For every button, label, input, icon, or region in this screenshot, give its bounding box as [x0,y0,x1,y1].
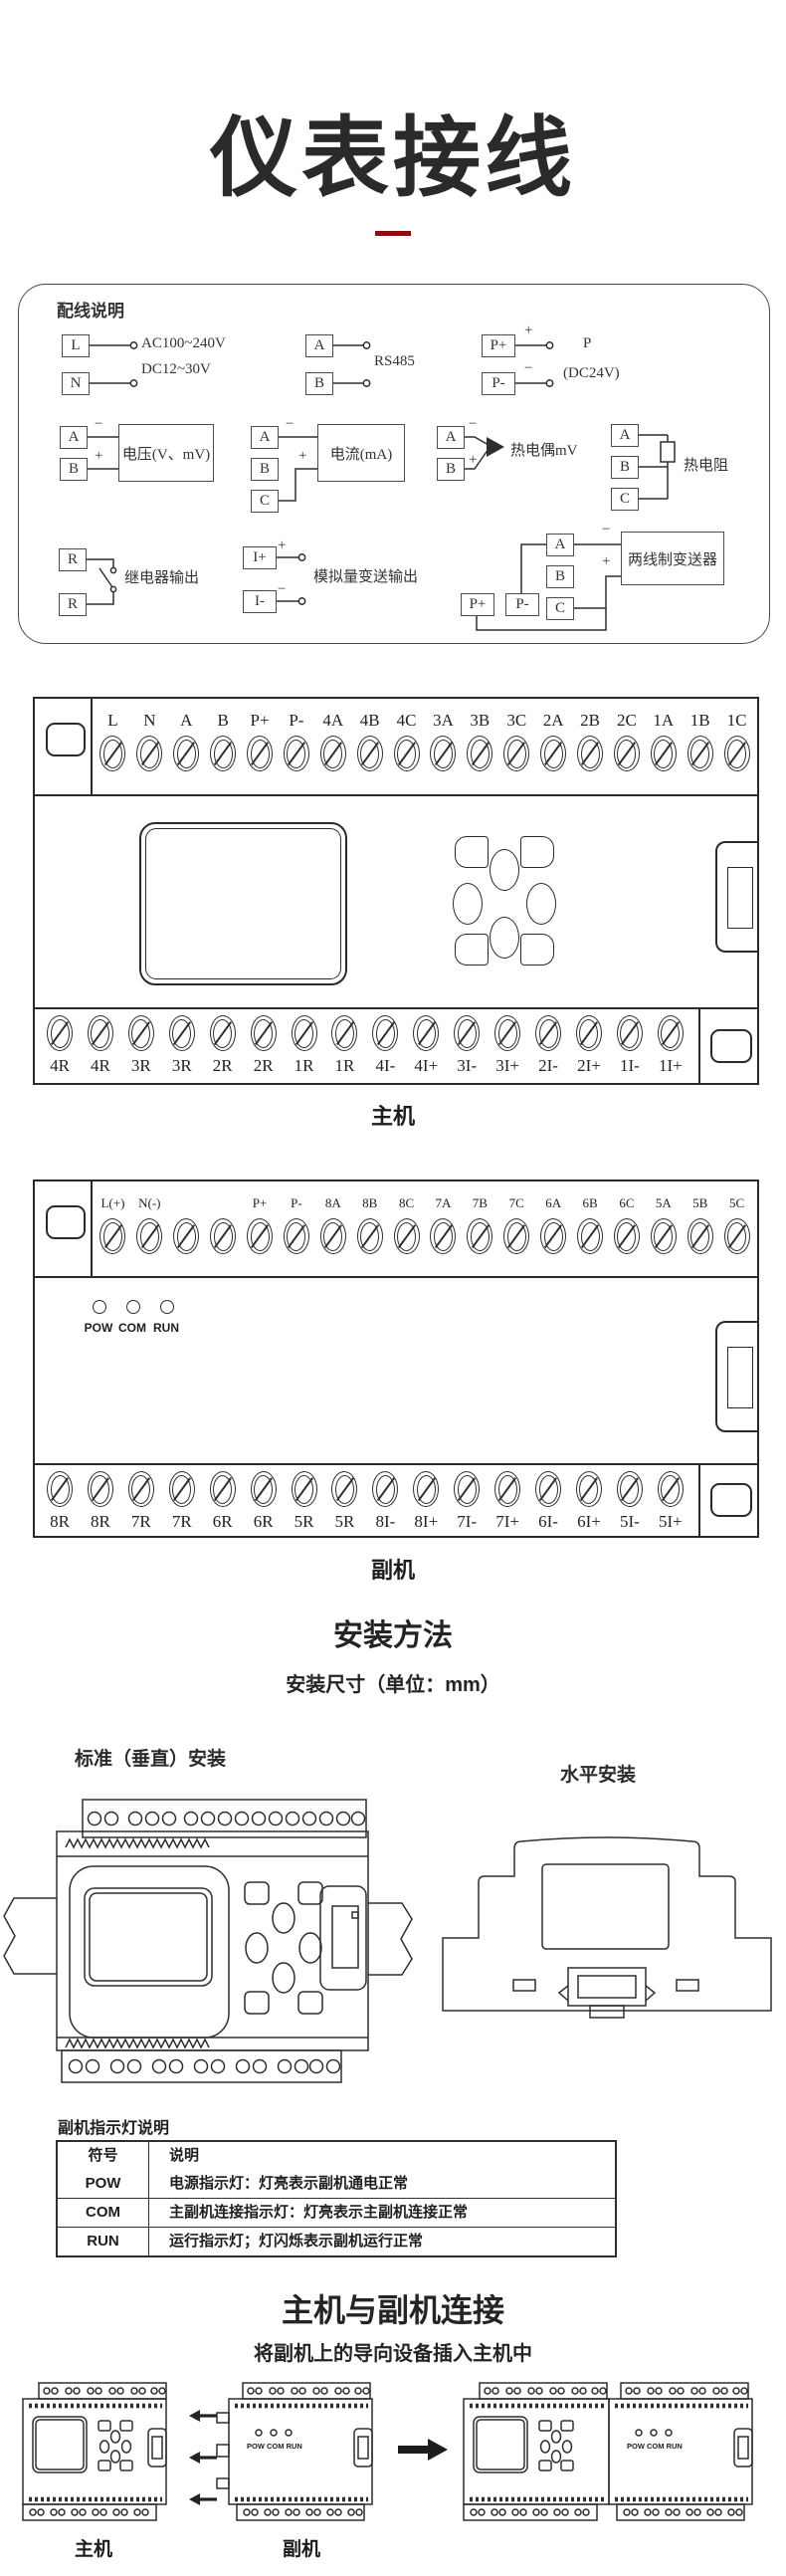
terminal-label: 1A [653,711,674,731]
product-wiring-page: 仪表接线 配线说明 [0,0,786,2576]
left-button [453,883,483,925]
screw-terminal-icon [331,1015,357,1051]
terminal-label: 5A [656,1193,672,1213]
terminal-label: 1R [335,1056,355,1076]
screw-terminal-icon [47,1015,73,1051]
transmitter-box: 两线制变送器 [621,532,724,585]
com-led [126,1300,140,1314]
terminal-label: 5R [295,1512,314,1532]
terminal-label: 7A [436,1193,452,1213]
indicator-table: 符号 说明 POW 电源指示灯：灯亮表示副机通电正常 COM 主副机连接指示灯：… [56,2140,617,2257]
divider [35,1463,757,1465]
wiring-instructions-box: 配线说明 [18,284,770,644]
terminal-column: 3A [425,711,462,771]
terminal-column: 5I+ [652,1471,689,1532]
terminal-column: 4I- [366,1015,404,1076]
terminal-column: 8I- [366,1471,404,1532]
terminal-column [205,1193,242,1254]
terminal-column: 5B [682,1193,718,1254]
terminal-label: A [180,711,192,731]
terminal-label: P+ [253,1193,268,1213]
description-cell: 主副机连接指示灯：灯亮表示主副机连接正常 [149,2199,615,2227]
terminal-A-curr: A [251,426,279,449]
red-divider [375,231,411,236]
corner-button [455,934,489,966]
terminal-label: 2R [213,1056,233,1076]
table-row: POW 电源指示灯：灯亮表示副机通电正常 [58,2170,615,2198]
sub-bottom-terminal-strip: 8R 8R 7R 7R 6R 6R 5R 5R [41,1471,689,1532]
terminal-label: 5C [729,1193,744,1213]
terminal-label: 3C [506,711,526,731]
terminal-column: 3R [163,1015,201,1076]
screw-terminal-icon [128,1015,154,1051]
divider [35,1007,757,1009]
screw-terminal-icon [467,736,492,771]
screw-terminal-icon [372,1471,398,1507]
terminal-label: 1I- [620,1056,640,1076]
screw-terminal-icon [88,1015,113,1051]
rs485-label: RS485 [374,353,415,370]
terminal-Iminus: I- [243,590,277,613]
screw-terminal-icon [284,736,309,771]
screw-terminal-icon [47,1471,73,1507]
screw-terminal-icon [320,1218,346,1254]
screw-terminal-icon [99,1218,125,1254]
terminal-label: L(+) [100,1193,124,1213]
terminal-column: 6C [608,1193,645,1254]
screw-terminal-icon [169,1015,195,1051]
terminal-column: 4A [314,711,351,771]
terminal-B-curr: B [251,458,279,481]
terminal-label: P+ [250,711,269,731]
connection-subheading: 将副机上的导向设备插入主机中 [0,2337,786,2366]
terminal-column: N(-) [131,1193,168,1254]
terminal-Pplus: P+ [482,334,515,357]
terminal-column: 3I+ [489,1015,526,1076]
terminal-column: 8I+ [407,1471,445,1532]
terminal-Iplus: I+ [243,546,277,569]
terminal-column: 1C [718,711,755,771]
table-row: COM 主副机连接指示灯：灯亮表示主副机连接正常 [58,2198,615,2227]
screw-terminal-icon [88,1471,113,1507]
terminal-column: 1R [286,1015,323,1076]
screw-terminal-icon [251,1015,277,1051]
terminal-column: 5C [718,1193,755,1254]
terminal-label: 2B [580,711,600,731]
terminal-column: 8R [82,1471,119,1532]
terminal-label: 4R [91,1056,110,1076]
right-button [526,883,556,925]
screw-terminal-icon [136,736,162,771]
terminal-column: 1I+ [652,1015,689,1076]
terminal-column: 7B [462,1193,498,1254]
terminal-column: 6A [535,1193,572,1254]
symbol-column-header: 符号 [58,2142,149,2170]
screw-terminal-icon [724,736,750,771]
mini-sub-caption: 副机 [283,2534,320,2561]
divider [91,699,93,794]
vertical-install-label: 标准（垂直）安装 [75,1744,226,1771]
connection-heading: 主机与副机连接 [0,2285,786,2331]
screw-terminal-icon [251,1471,277,1507]
screw-terminal-icon [535,1015,561,1051]
plus-sign: + [469,452,477,469]
corner-button [455,836,489,868]
terminal-label: 6I- [538,1512,558,1532]
terminal-column: 7I+ [489,1471,526,1532]
left-arrow-icon [189,2451,217,2465]
terminal-A-volt: A [60,426,88,449]
screw-terminal-icon [357,1218,383,1254]
mini-main-caption: 主机 [75,2534,112,2561]
terminal-column: 6R [245,1471,283,1532]
sub-unit-caption: 副机 [0,1553,786,1585]
screw-terminal-icon [617,1471,643,1507]
terminal-label: 8A [325,1193,341,1213]
terminal-column: A [168,711,205,771]
voltage-box: 电压(V、mV) [118,424,214,482]
terminal-label: 8B [362,1193,377,1213]
terminal-label: 1I+ [659,1056,683,1076]
terminal-B-tx: B [546,565,574,588]
divider [35,794,757,796]
terminal-label: 6R [213,1512,233,1532]
install-subheading: 安装尺寸（单位：mm） [0,1668,786,1697]
terminal-label: 4R [50,1056,70,1076]
screw-terminal-icon [688,736,713,771]
screw-terminal-icon [454,1471,480,1507]
terminal-label: 7R [131,1512,151,1532]
rtd-label: 热电阻 [684,454,728,475]
terminal-column: 7R [122,1471,160,1532]
terminal-label: L [107,711,117,731]
divider [698,1463,700,1538]
screw-terminal-icon [658,1471,684,1507]
screw-terminal-icon [494,1471,520,1507]
dc24v-label: (DC24V) [563,365,620,382]
screw-terminal-icon [394,736,420,771]
terminal-column: 8B [351,1193,388,1254]
terminal-label: 6C [619,1193,634,1213]
main-unit-diagram: L N A B P+ P- 4A 4B [33,697,759,1085]
terminal-column: 3R [122,1015,160,1076]
terminal-column: 4R [82,1015,119,1076]
terminal-label: 6I+ [577,1512,601,1532]
plus-sign: + [298,448,306,465]
terminal-column: 7C [498,1193,535,1254]
screw-terminal-icon [467,1218,492,1254]
screw-terminal-icon [292,1015,317,1051]
vertical-install-diagram [0,1787,428,2090]
main-top-terminal-strip: L N A B P+ P- 4A 4B [95,711,755,771]
terminal-column: 8C [388,1193,425,1254]
terminal-label: P- [289,711,303,731]
right-arrow-icon [398,2437,448,2463]
side-connector-port [715,841,759,953]
terminal-column: 7A [425,1193,462,1254]
corner-button [520,836,554,868]
terminal-label: 2A [543,711,564,731]
p-label: P [583,335,591,352]
terminal-label: 1R [295,1056,314,1076]
terminal-B-volt: B [60,458,88,481]
mini-led-labels: POW COM RUN [247,2442,302,2451]
screw-terminal-icon [210,1218,236,1254]
terminal-label: 6A [545,1193,561,1213]
screw-terminal-icon [503,736,529,771]
terminal-column: L [95,711,131,771]
description-cell: 运行指示灯；灯闪烁表示副机运行正常 [149,2228,615,2255]
terminal-C-curr: C [251,490,279,513]
terminal-column: 2R [204,1015,242,1076]
terminal-column [168,1193,205,1254]
plus-sign: + [278,537,286,554]
terminal-column: 8A [314,1193,351,1254]
screw-terminal-icon [169,1471,195,1507]
terminal-label: 7C [509,1193,524,1213]
terminal-label: 8C [399,1193,414,1213]
symbol-cell: POW [58,2170,149,2198]
minus-sign: − [602,522,610,538]
screw-terminal-icon [357,736,383,771]
screw-terminal-icon [173,736,199,771]
terminal-label: P- [291,1193,302,1213]
terminal-column: 7R [163,1471,201,1532]
page-title: 仪表接线 [0,88,786,214]
terminal-label: 3I- [457,1056,477,1076]
terminal-R1: R [59,548,87,571]
terminal-label: 3R [131,1056,151,1076]
screw-terminal-icon [724,1218,750,1254]
divider [35,1276,757,1278]
mini-led-labels: POW COM RUN [627,2442,683,2451]
install-heading: 安装方法 [0,1610,786,1654]
terminal-label: 7I- [457,1512,477,1532]
mount-hole [46,1205,86,1239]
terminal-label: 7B [473,1193,488,1213]
terminal-column: 2B [572,711,609,771]
terminal-label: 6B [582,1193,597,1213]
divider [91,1181,93,1276]
terminal-label: 3A [433,711,454,731]
screw-terminal-icon [413,1471,439,1507]
screw-terminal-icon [394,1218,420,1254]
terminal-Pminus-tx: P- [505,593,539,616]
terminal-column: 7I- [448,1471,486,1532]
terminal-label: 4C [397,711,417,731]
terminal-column: L(+) [95,1193,131,1254]
terminal-label: 4I- [375,1056,395,1076]
screw-terminal-icon [331,1471,357,1507]
screw-terminal-icon [128,1471,154,1507]
plus-sign: + [602,553,610,570]
screw-terminal-icon [576,1015,602,1051]
terminal-label: 2R [254,1056,274,1076]
terminal-A-tc: A [437,426,465,449]
screw-terminal-icon [136,1218,162,1254]
mount-hole [710,1483,752,1517]
table-row: RUN 运行指示灯；灯闪烁表示副机运行正常 [58,2227,615,2255]
terminal-column: 6R [204,1471,242,1532]
screw-terminal-icon [210,1015,236,1051]
divider [698,1007,700,1085]
left-arrow-icon [189,2492,217,2506]
screw-terminal-icon [210,1471,236,1507]
terminal-label: 5B [692,1193,707,1213]
minus-sign: − [278,581,286,598]
terminal-column: 1B [682,711,718,771]
screw-terminal-icon [651,736,677,771]
terminal-column: 2A [535,711,572,771]
terminal-column: 6I+ [570,1471,608,1532]
terminal-column: 2I- [529,1015,567,1076]
screw-terminal-icon [540,1218,566,1254]
terminal-B-tc: B [437,458,465,481]
screw-terminal-icon [540,736,566,771]
screw-terminal-icon [320,736,346,771]
terminal-column: 4R [41,1015,79,1076]
screw-terminal-icon [284,1218,309,1254]
screw-terminal-icon [688,1218,713,1254]
terminal-Pplus-tx: P+ [461,593,494,616]
terminal-column: 2C [608,711,645,771]
left-arrow-icon [189,2409,217,2423]
terminal-column: P+ [242,1193,279,1254]
terminal-label: B [217,711,228,731]
screw-terminal-icon [577,736,603,771]
indicator-table-heading: 副机指示灯说明 [58,2114,169,2138]
terminal-label: 5I+ [659,1512,683,1532]
display-screen [139,822,347,985]
screw-terminal-icon [576,1471,602,1507]
terminal-column: 6I- [529,1471,567,1532]
horizontal-install-diagram [433,1836,781,2036]
terminal-column: 4C [388,711,425,771]
terminal-label: 5R [335,1512,355,1532]
pow-led [93,1300,106,1314]
terminal-column: P- [278,711,314,771]
terminal-label: 7I+ [495,1512,519,1532]
screw-terminal-icon [454,1015,480,1051]
corner-button [520,934,554,966]
main-unit-mini [19,2381,178,2528]
screw-terminal-icon [614,736,640,771]
terminal-label: 7R [172,1512,192,1532]
terminal-C-rtd: C [611,488,639,511]
terminal-column: 5R [325,1471,363,1532]
run-led [160,1300,174,1314]
terminal-column: 2R [245,1015,283,1076]
terminal-column: 5I- [611,1471,649,1532]
screw-terminal-icon [292,1471,317,1507]
screw-terminal-icon [658,1015,684,1051]
terminal-label: 5I- [620,1512,640,1532]
sub-unit-diagram: L(+) N(-) P+ P- 8A 8B [33,1180,759,1538]
screw-terminal-icon [247,736,273,771]
down-button [490,917,519,959]
screw-terminal-icon [173,1218,199,1254]
terminal-A-rs485: A [305,334,333,357]
terminal-A-tx: A [546,534,574,556]
run-led-label: RUN [146,1321,186,1335]
power-range-2: DC12~30V [141,361,211,378]
terminal-column: N [131,711,168,771]
terminal-L: L [62,334,90,357]
main-unit-caption: 主机 [0,1099,786,1131]
terminal-column: 1I- [611,1015,649,1076]
terminal-N: N [62,372,90,395]
screw-terminal-icon [430,1218,456,1254]
mount-hole [710,1029,752,1063]
screw-terminal-icon [247,1218,273,1254]
current-box: 电流(mA) [317,424,405,482]
table-header-row: 符号 说明 [58,2142,615,2170]
terminal-label: 1C [727,711,747,731]
symbol-cell: RUN [58,2228,149,2255]
description-cell: 电源指示灯：灯亮表示副机通电正常 [149,2170,615,2198]
terminal-label: 8R [50,1512,70,1532]
terminal-label: 6R [254,1512,274,1532]
terminal-label: 3B [470,711,490,731]
terminal-Pminus: P- [482,372,515,395]
screw-terminal-icon [430,736,456,771]
description-column-header: 说明 [149,2142,615,2170]
terminal-column: 3I- [448,1015,486,1076]
combined-units-mini: POW COM RUN [460,2381,770,2528]
side-connector-port [715,1321,759,1432]
terminal-R2: R [59,593,87,616]
sub-top-terminal-strip: L(+) N(-) P+ P- 8A 8B [95,1193,755,1254]
terminal-label: N [143,711,155,731]
terminal-column: 4I+ [407,1015,445,1076]
horizontal-install-label: 水平安装 [560,1760,636,1787]
plus-sign: + [95,448,102,465]
screw-terminal-icon [210,736,236,771]
power-range-1: AC100~240V [141,335,226,352]
terminal-column: 2I+ [570,1015,608,1076]
terminal-column: P- [278,1193,314,1254]
terminal-label: 1B [690,711,710,731]
screw-terminal-icon [503,1218,529,1254]
screw-terminal-icon [494,1015,520,1051]
screw-terminal-icon [99,736,125,771]
analog-out-label: 模拟量变送输出 [313,565,418,586]
minus-sign: − [469,416,477,433]
terminal-column: 6B [572,1193,609,1254]
minus-sign: − [286,416,294,433]
terminal-column: 1R [325,1015,363,1076]
terminal-column: P+ [242,711,279,771]
terminal-column: 8R [41,1471,79,1532]
terminal-label: N(-) [138,1193,160,1213]
terminal-column: B [205,711,242,771]
minus-sign: − [524,360,532,377]
terminal-label: 8I- [375,1512,395,1532]
terminal-column: 1A [645,711,682,771]
terminal-A-rtd: A [611,424,639,447]
up-button [490,849,519,891]
minus-sign: − [95,416,102,433]
screw-terminal-icon [614,1218,640,1254]
relay-label: 继电器输出 [124,566,199,587]
terminal-B-rtd: B [611,456,639,479]
thermocouple-label: 热电偶mV [510,439,578,460]
terminal-label: 3R [172,1056,192,1076]
terminal-label: 8R [91,1512,110,1532]
terminal-C-tx: C [546,597,574,620]
symbol-cell: COM [58,2199,149,2227]
screw-terminal-icon [577,1218,603,1254]
